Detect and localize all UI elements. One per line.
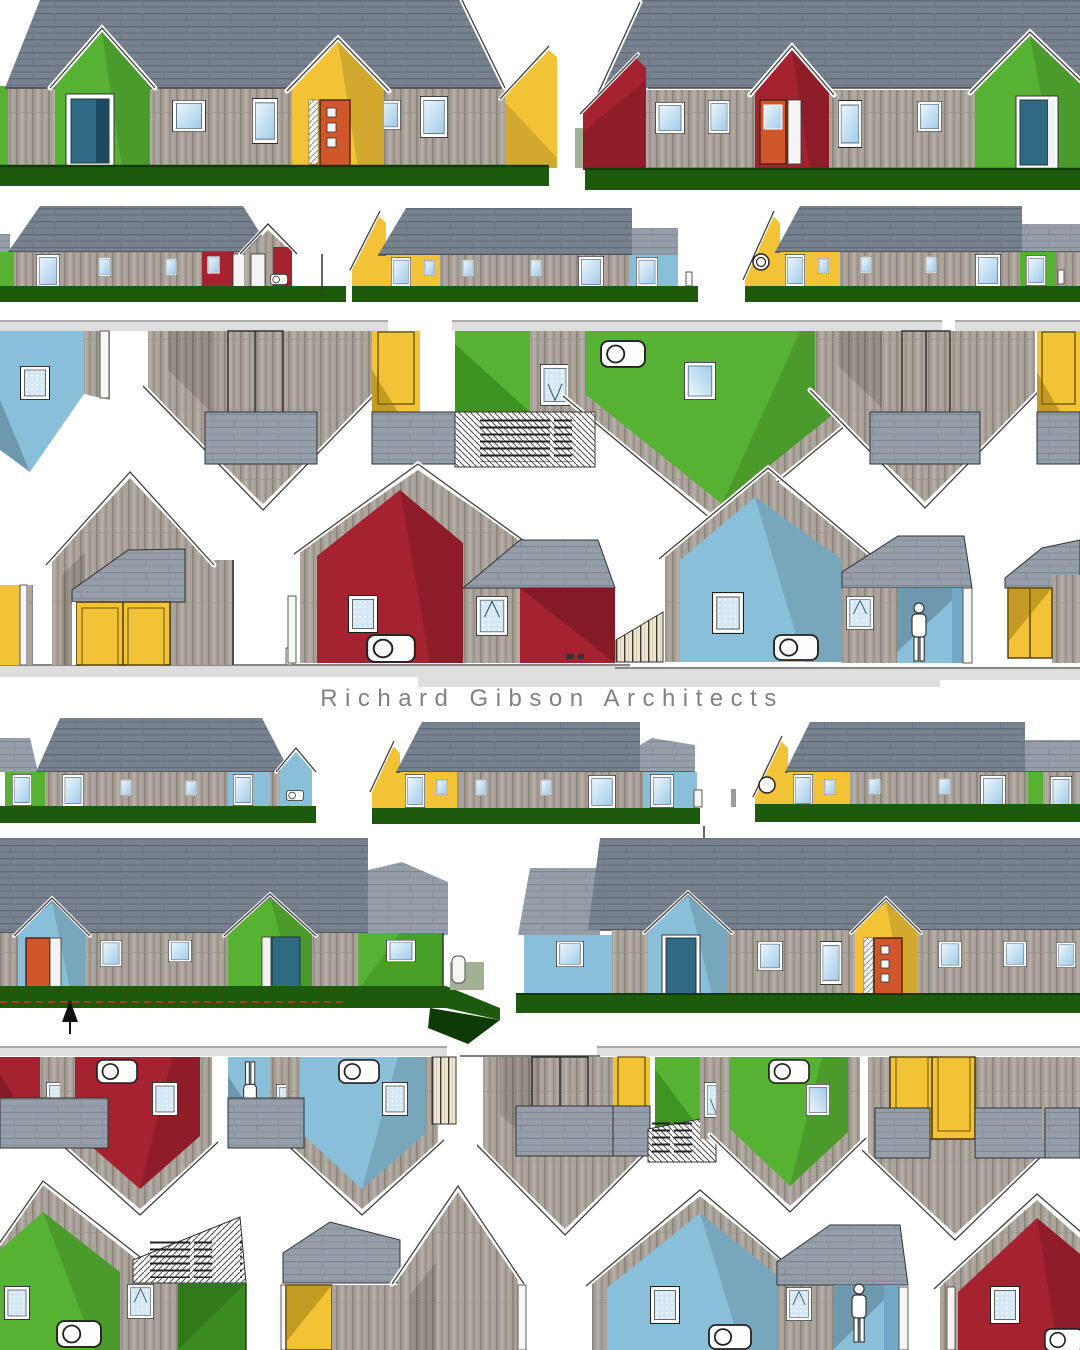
window-icon bbox=[917, 101, 942, 132]
window-icon bbox=[1056, 942, 1076, 968]
teal-door bbox=[666, 938, 696, 995]
window-icon bbox=[98, 257, 111, 277]
window-icon bbox=[938, 941, 962, 968]
window-icon bbox=[62, 774, 84, 807]
window-icon bbox=[650, 1286, 680, 1324]
vent-icon bbox=[709, 1325, 751, 1349]
window-icon bbox=[420, 96, 448, 138]
grass-strip bbox=[516, 993, 1080, 1013]
window-icon bbox=[382, 1082, 408, 1116]
window-icon bbox=[846, 596, 874, 630]
poster-canvas: Richard Gibson Architects bbox=[0, 0, 1080, 1350]
window-icon bbox=[4, 1286, 30, 1320]
window-icon bbox=[36, 254, 60, 288]
window-icon bbox=[1026, 255, 1046, 286]
window-icon bbox=[860, 256, 872, 274]
window-icon bbox=[757, 941, 783, 971]
window-icon bbox=[980, 775, 1006, 808]
window-icon bbox=[636, 257, 658, 287]
window-icon bbox=[818, 258, 829, 274]
vent-icon bbox=[774, 635, 818, 660]
window-icon bbox=[207, 256, 220, 274]
window-icon bbox=[925, 256, 937, 274]
glass-door bbox=[405, 774, 425, 808]
glass-door bbox=[12, 774, 32, 806]
window-icon bbox=[233, 774, 253, 806]
window-icon bbox=[152, 1082, 178, 1116]
window-icon bbox=[588, 775, 616, 809]
window-icon bbox=[462, 259, 474, 277]
window-icon bbox=[436, 779, 448, 795]
window-icon bbox=[172, 100, 206, 132]
window-icon bbox=[838, 100, 862, 148]
architects-poster: Richard Gibson Architects bbox=[0, 0, 1080, 1350]
window-icon bbox=[127, 1284, 154, 1319]
vent-icon bbox=[367, 635, 415, 662]
window-icon bbox=[938, 778, 951, 795]
grass-strip bbox=[0, 986, 446, 1008]
window-icon bbox=[185, 780, 197, 796]
grass-strip bbox=[0, 806, 316, 823]
timber-fence bbox=[432, 1057, 456, 1124]
window-icon bbox=[820, 941, 842, 985]
grass-strip bbox=[352, 286, 698, 302]
glass-door bbox=[793, 774, 813, 807]
window-icon bbox=[655, 102, 685, 134]
vent-icon bbox=[1045, 1329, 1080, 1350]
window-icon bbox=[348, 595, 378, 633]
window-icon bbox=[120, 779, 132, 796]
window-icon bbox=[786, 1287, 812, 1321]
window-icon bbox=[684, 362, 716, 400]
spec-notes bbox=[150, 1238, 242, 1278]
window-icon bbox=[386, 940, 416, 962]
window-icon bbox=[556, 941, 584, 967]
flipped-yellow-corner bbox=[1037, 331, 1080, 464]
vent-icon bbox=[759, 777, 775, 793]
vent-icon bbox=[339, 1060, 379, 1083]
spec-notes bbox=[458, 418, 588, 462]
window-icon bbox=[712, 592, 744, 634]
street-elevation-6b bbox=[516, 838, 1080, 1013]
window-icon bbox=[806, 1084, 830, 1116]
window-icon bbox=[20, 366, 50, 400]
grass-strip bbox=[0, 286, 346, 302]
grass-strip bbox=[755, 804, 1080, 822]
vent-icon bbox=[57, 1321, 101, 1347]
window-icon bbox=[975, 254, 1001, 287]
window-icon bbox=[990, 1286, 1020, 1324]
window-icon bbox=[578, 256, 604, 288]
cut-yellow-door bbox=[0, 585, 33, 665]
grass-strip bbox=[0, 165, 549, 186]
vent-icon bbox=[286, 790, 303, 800]
window-icon bbox=[252, 98, 278, 144]
grass-strip bbox=[585, 168, 1080, 190]
window-icon bbox=[165, 258, 177, 276]
glass-door bbox=[391, 257, 411, 287]
grass-strip bbox=[372, 808, 700, 824]
window-icon bbox=[1050, 776, 1072, 808]
orange-door bbox=[26, 938, 50, 988]
window-icon bbox=[476, 596, 508, 636]
window-icon bbox=[540, 779, 552, 796]
elevation-row-2 bbox=[0, 206, 1080, 302]
window-icon bbox=[100, 940, 122, 967]
window-icon bbox=[868, 778, 881, 795]
window-icon bbox=[424, 260, 435, 276]
teal-door bbox=[1020, 100, 1048, 165]
vent-icon bbox=[97, 1060, 137, 1083]
studio-title: Richard Gibson Architects bbox=[320, 685, 784, 712]
vent-icon bbox=[753, 254, 769, 270]
window-icon bbox=[650, 774, 674, 808]
teal-door bbox=[272, 937, 300, 990]
vent-icon bbox=[769, 1060, 809, 1083]
window-icon bbox=[708, 100, 730, 134]
window-icon bbox=[475, 779, 487, 796]
glass-door bbox=[785, 254, 805, 287]
street-elevation-1a bbox=[0, 0, 557, 186]
street-elevation-1b bbox=[575, 0, 1080, 190]
grass-strip bbox=[745, 286, 1080, 302]
vent-icon bbox=[270, 274, 287, 284]
window-icon bbox=[168, 940, 192, 962]
window-icon bbox=[1003, 941, 1027, 967]
window-icon bbox=[824, 779, 836, 795]
window-icon bbox=[530, 259, 542, 277]
vent-icon bbox=[601, 341, 645, 367]
